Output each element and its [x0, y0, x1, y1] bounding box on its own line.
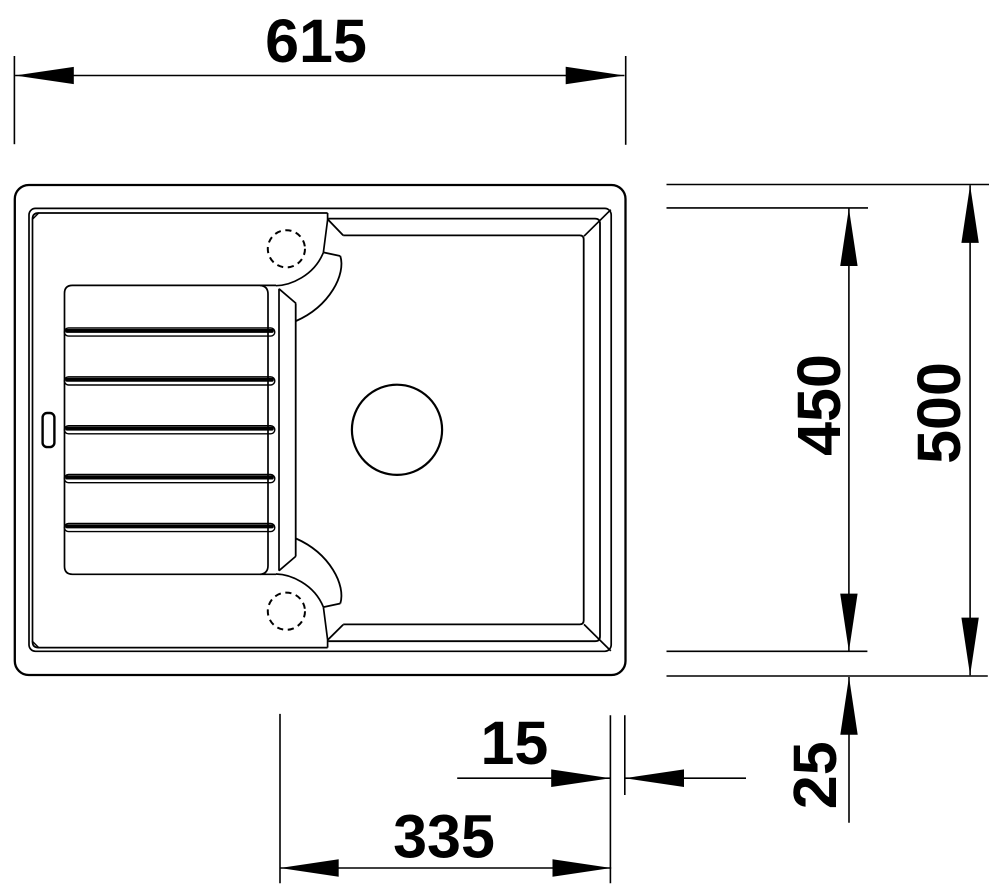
svg-text:615: 615 [265, 7, 367, 75]
svg-text:335: 335 [393, 803, 495, 871]
svg-text:450: 450 [785, 354, 853, 456]
svg-text:15: 15 [480, 709, 548, 777]
svg-text:500: 500 [905, 362, 973, 464]
svg-text:25: 25 [781, 741, 849, 809]
